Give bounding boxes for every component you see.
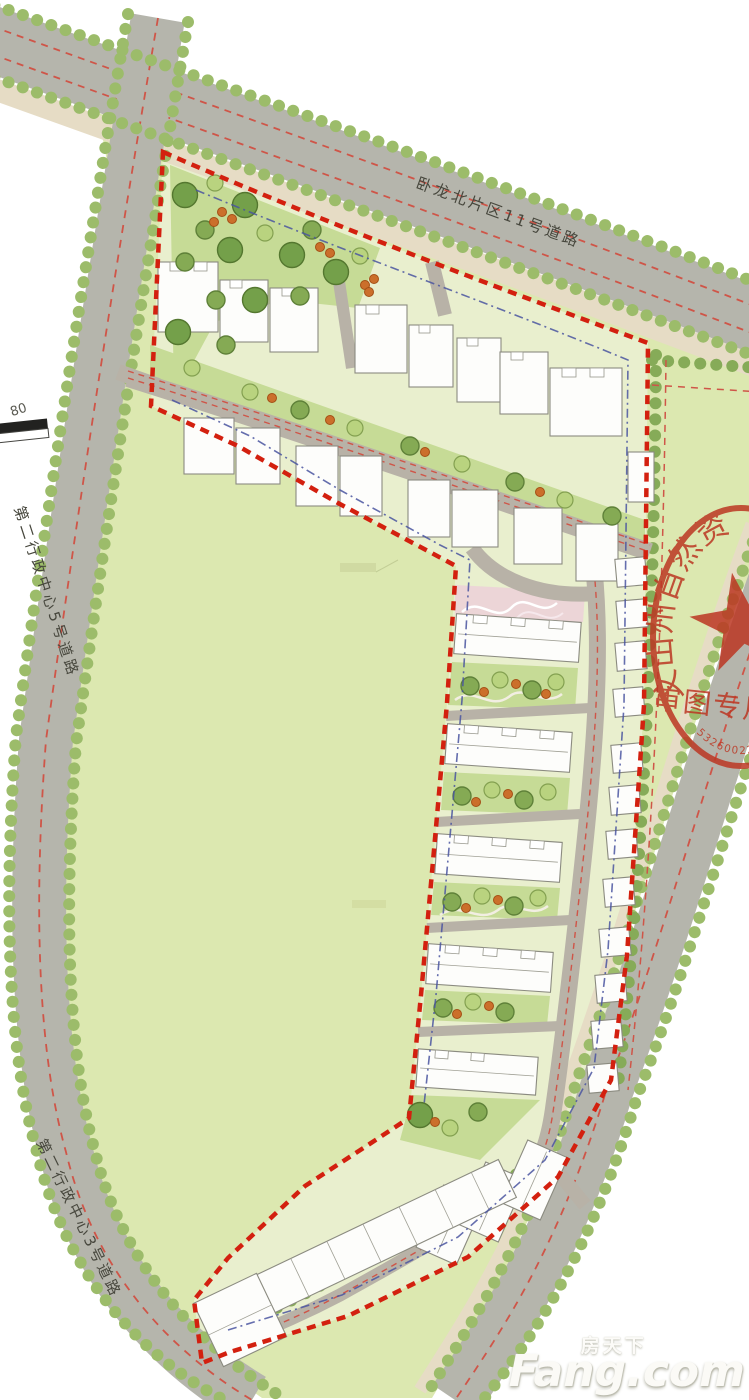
- watermark-logo: Fang.com: [509, 1350, 745, 1394]
- site-plan-page: 卧龙北片区11号道路 第二行政中心5号道路 第二行政中心3号道路 80 文山州自…: [0, 0, 749, 1400]
- site-plan-drawing: 卧龙北片区11号道路 第二行政中心5号道路 第二行政中心3号道路 80 文山州自…: [0, 0, 749, 1400]
- scale-bar: 80: [0, 399, 49, 443]
- scale-bar-value: 80: [8, 401, 28, 420]
- watermark: 房天下 Fang.com: [509, 1337, 745, 1394]
